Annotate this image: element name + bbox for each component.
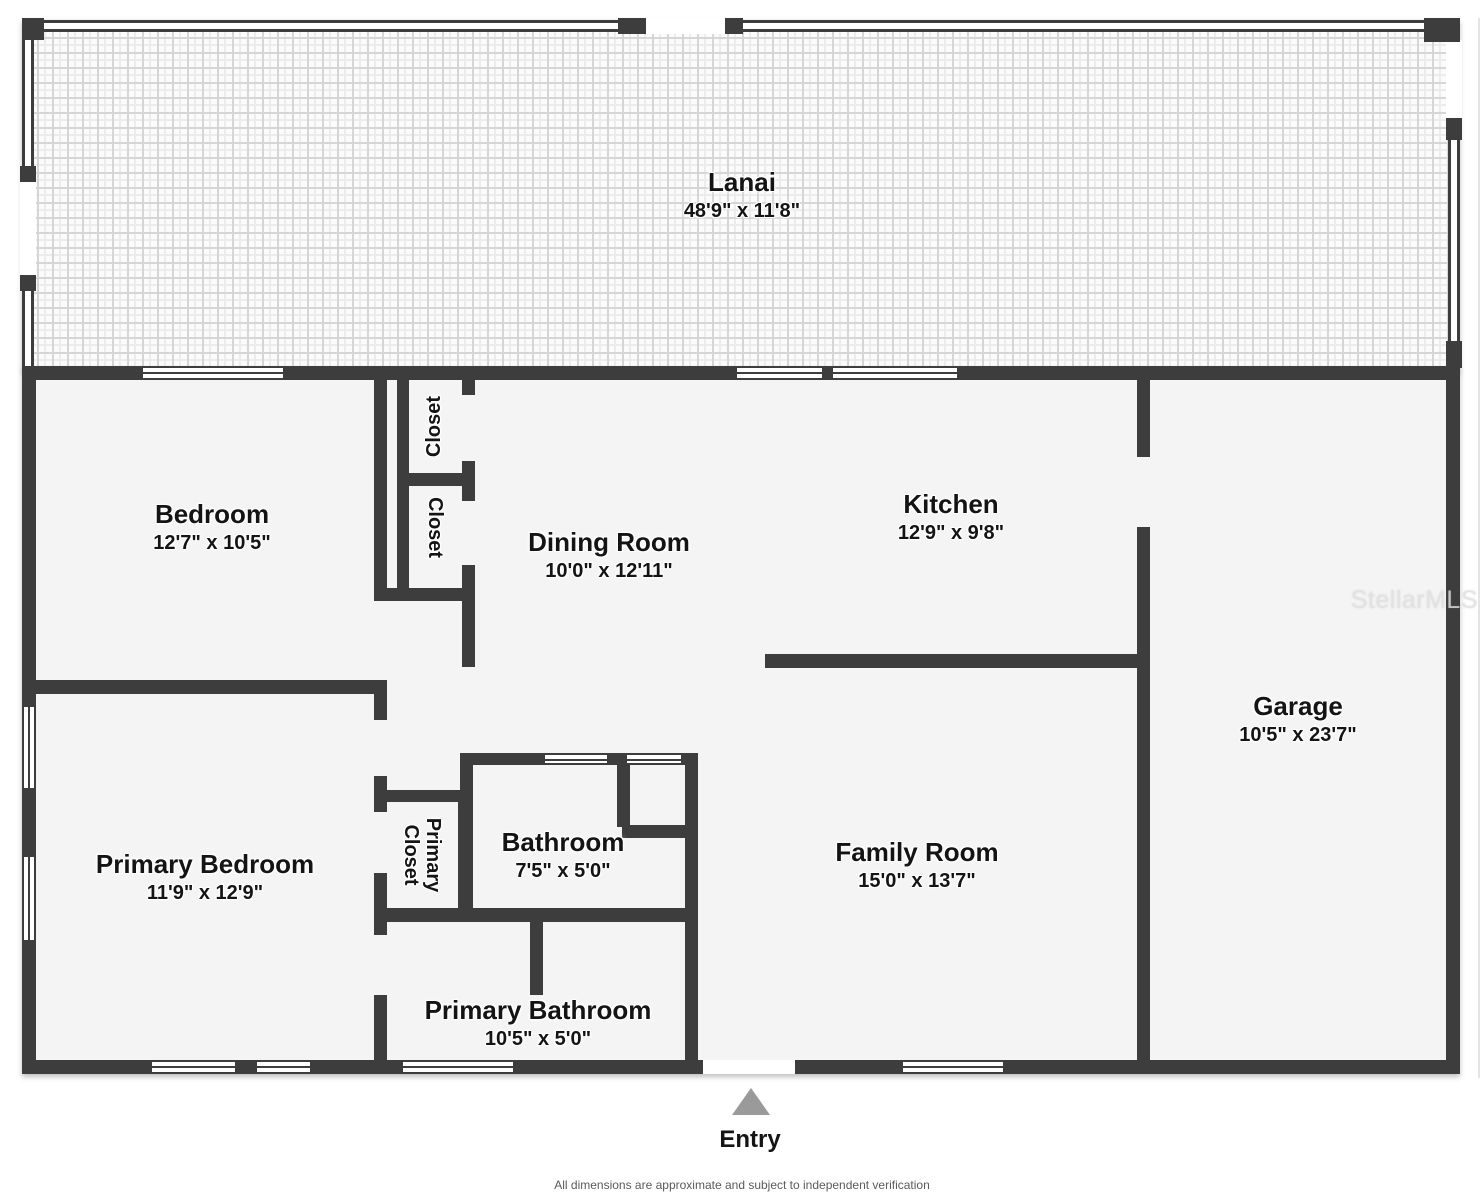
lanai-post (20, 275, 36, 291)
room-label-primary-bedroom: Primary Bedroom 11'9" x 12'9" (30, 850, 380, 906)
room-name: Primary Closet (400, 795, 444, 915)
room-label-primary-bathroom: Primary Bathroom 10'5" x 5'0" (368, 996, 708, 1052)
room-name: Garage (1253, 692, 1343, 722)
room-dims: 7'5" x 5'0" (515, 858, 610, 884)
wall (374, 380, 387, 601)
room-dims: 10'5" x 23'7" (1239, 722, 1356, 748)
wall (1137, 380, 1150, 457)
wall (822, 366, 833, 380)
lanai-side-opening (1446, 40, 1462, 120)
room-dims: 48'9" x 11'8" (684, 198, 800, 224)
room-label-dining-room: Dining Room 10'0" x 12'11" (459, 528, 759, 584)
bathroom-door-opening (627, 753, 681, 765)
window (257, 1060, 310, 1074)
lanai-post (618, 18, 646, 34)
image-edge (1478, 18, 1480, 1078)
bathroom-door-opening (545, 753, 607, 765)
lanai-post (1446, 118, 1462, 140)
room-label-family-room: Family Room 15'0" x 13'7" (767, 838, 1067, 894)
room-label-bedroom: Bedroom 12'7" x 10'5" (62, 500, 362, 556)
sliding-door (737, 366, 822, 380)
room-label-closet-top: Closet (390, 381, 480, 471)
room-dims: 10'0" x 12'11" (545, 558, 672, 584)
room-name: Primary Bedroom (96, 850, 314, 880)
room-name: Bedroom (155, 500, 269, 530)
room-name: Primary Bathroom (425, 996, 652, 1026)
lanai-post (20, 166, 36, 182)
wall (607, 753, 629, 765)
watermark: StellarMLS (1351, 586, 1478, 615)
wall (22, 680, 387, 694)
room-label-kitchen: Kitchen 12'9" x 9'8" (801, 490, 1101, 546)
entry-label: Entry (650, 1126, 850, 1154)
wall (617, 765, 630, 827)
window (403, 1060, 513, 1074)
room-dims: 12'7" x 10'5" (153, 530, 270, 556)
garage-door-opening (1137, 457, 1150, 527)
room-dims: 11'9" x 12'9" (147, 880, 263, 906)
room-name: Family Room (835, 838, 998, 868)
window (903, 1060, 1003, 1074)
lanai-post (22, 18, 44, 40)
wall (374, 694, 387, 720)
room-name: Closet (424, 496, 447, 557)
floor-plan: Lanai 48'9" x 11'8" Bedroom 12'7" x 10'5… (0, 0, 1484, 1200)
wall (374, 588, 467, 601)
lanai-post (1424, 18, 1460, 42)
wall (1137, 527, 1150, 1060)
lanai-door-opening (646, 18, 725, 34)
lanai-post (1446, 341, 1462, 368)
room-name: Closet (424, 395, 447, 456)
lanai-post (725, 18, 743, 34)
room-name: Lanai (708, 168, 776, 198)
room-name: Kitchen (903, 490, 998, 520)
room-label-primary-closet: Primary Closet (362, 795, 482, 915)
wall (765, 654, 1148, 668)
room-label-lanai: Lanai 48'9" x 11'8" (592, 168, 892, 224)
entry-arrow-icon (732, 1088, 770, 1115)
window (22, 707, 36, 788)
wall (530, 922, 543, 995)
entry-door-opening (703, 1060, 795, 1074)
window (143, 366, 283, 380)
wall (460, 753, 547, 765)
room-label-garage: Garage 10'5" x 23'7" (1148, 692, 1448, 748)
disclaimer-text: All dimensions are approximate and subje… (0, 1178, 1484, 1192)
room-dims: 15'0" x 13'7" (858, 868, 975, 894)
window (152, 1060, 235, 1074)
room-name: Bathroom (502, 828, 625, 858)
room-dims: 10'5" x 5'0" (485, 1026, 591, 1052)
sliding-door (833, 366, 957, 380)
room-label-closet-bottom: Closet (390, 482, 480, 572)
wall (1446, 366, 1460, 1074)
room-name: Dining Room (528, 528, 690, 558)
room-dims: 12'9" x 9'8" (898, 520, 1004, 546)
lanai-side-opening (20, 182, 36, 275)
